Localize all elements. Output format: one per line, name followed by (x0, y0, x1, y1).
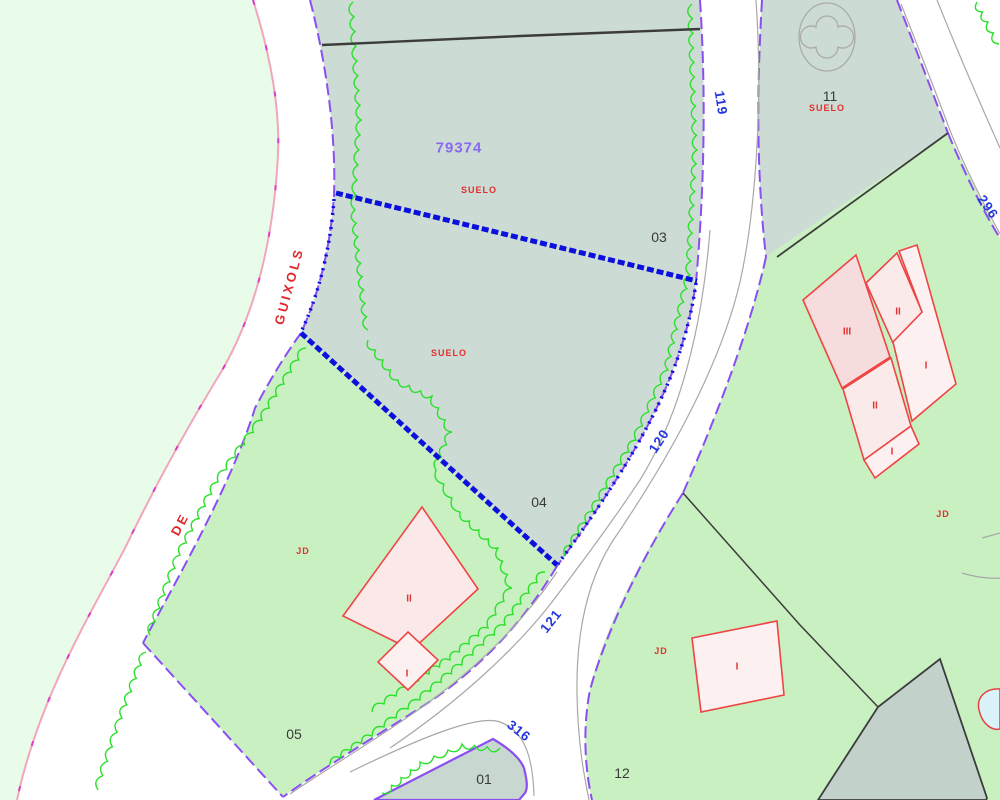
building-height-label: II (872, 401, 878, 412)
building-height-label: III (843, 327, 851, 338)
parcel-number-label[interactable]: 05 (286, 726, 302, 742)
map-layers (0, 0, 1000, 800)
parcel-number-label[interactable]: 01 (476, 771, 492, 787)
land-use-label: SUELO (461, 185, 497, 195)
building-height-label: II (406, 594, 412, 605)
cadastral-map-canvas[interactable]: GUIXOLS DE 79374 SUELO SUELO SUELO 03 04… (0, 0, 1000, 800)
parcel-number-label[interactable]: 04 (531, 494, 547, 510)
landscape-code-label: JD (936, 509, 950, 519)
parcel-number-label[interactable]: 11 (823, 88, 838, 104)
building-height-label: I (891, 447, 894, 458)
land-use-label: SUELO (431, 348, 467, 358)
landscape-code-label: JD (296, 546, 310, 556)
land-use-label: SUELO (809, 103, 845, 113)
building-height-label: II (895, 307, 901, 318)
parcel-number-label[interactable]: 03 (651, 229, 667, 245)
parcel-ref-label[interactable]: 79374 (436, 140, 483, 157)
parcel-number-label[interactable]: 12 (614, 765, 630, 781)
building-height-label: I (925, 361, 928, 372)
parcel-region-01[interactable] (374, 739, 527, 800)
landscape-code-label: JD (654, 646, 668, 656)
building-height-label: I (736, 662, 739, 673)
building-height-label: I (406, 669, 409, 680)
